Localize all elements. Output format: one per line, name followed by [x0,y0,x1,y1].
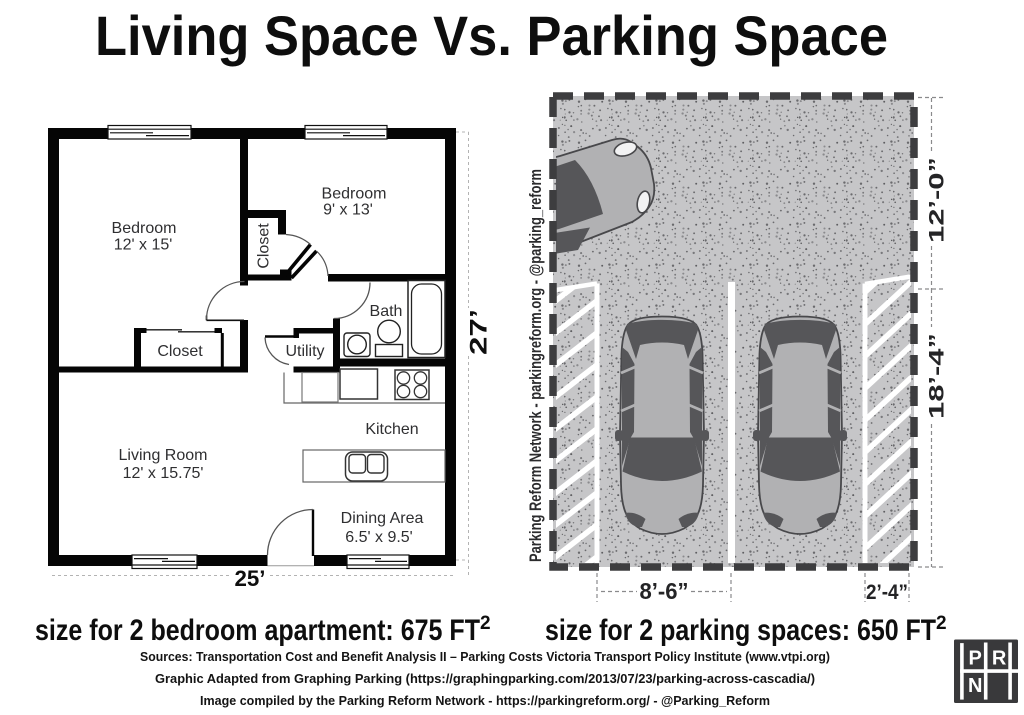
svg-text:R: R [992,648,1007,670]
svg-text:Kitchen: Kitchen [365,421,418,438]
svg-text:18’-4”: 18’-4” [925,333,949,419]
svg-text:12' x 15': 12' x 15' [114,237,173,254]
svg-text:Closet: Closet [157,343,203,360]
svg-text:9' x 13': 9' x 13' [323,202,373,219]
svg-text:P: P [969,648,982,670]
svg-text:Parking Reform Network - parki: Parking Reform Network - parkingreform.o… [527,169,545,562]
svg-text:size for 2 parking spaces: 650: size for 2 parking spaces: 650 FT2 [545,613,947,647]
svg-text:Living Space Vs. Parking Space: Living Space Vs. Parking Space [95,4,888,67]
svg-text:Closet: Closet [256,223,273,269]
svg-text:27’: 27’ [466,309,493,355]
svg-text:12' x 15.75': 12' x 15.75' [123,465,204,482]
svg-text:25’: 25’ [235,566,266,591]
svg-text:Image compiled by the Parking: Image compiled by the Parking Reform Net… [200,693,770,708]
svg-text:Living Room: Living Room [119,447,208,464]
svg-text:Bedroom: Bedroom [112,220,177,237]
svg-text:Bath: Bath [370,303,403,320]
svg-text:Sources: Transportation Cost a: Sources: Transportation Cost and Benefit… [140,649,830,664]
svg-text:Utility: Utility [285,343,324,360]
svg-text:size for 2 bedroom apartment:: size for 2 bedroom apartment: 675 FT2 [35,613,491,647]
svg-text:6.5' x 9.5': 6.5' x 9.5' [345,529,412,546]
svg-text:Dining Area: Dining Area [341,510,424,527]
svg-text:Graphic Adapted from Graphing: Graphic Adapted from Graphing Parking (h… [155,671,815,686]
svg-text:12’-0”: 12’-0” [925,157,949,243]
svg-text:2’-4”: 2’-4” [866,581,908,604]
svg-text:N: N [968,675,982,697]
svg-text:Bedroom: Bedroom [322,186,387,203]
svg-text:8’-6”: 8’-6” [640,578,689,604]
